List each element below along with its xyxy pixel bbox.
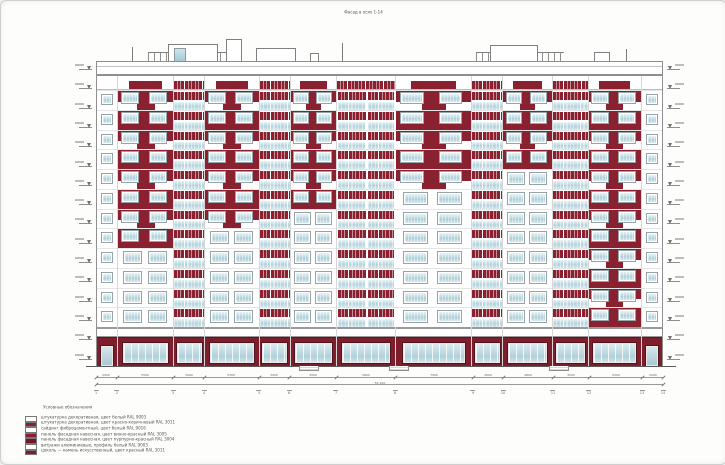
segment-dimension: 7500 <box>427 374 442 378</box>
window <box>209 152 225 162</box>
floor-cell <box>589 228 641 248</box>
balcony-glazing <box>553 318 588 327</box>
balcony-spandrel <box>472 211 502 219</box>
red-spine <box>503 161 551 169</box>
axis-number: 5 <box>253 391 264 395</box>
balcony-spandrel <box>260 230 290 238</box>
balcony-spandrel <box>472 151 502 159</box>
balcony-spandrel <box>260 191 290 199</box>
elevation-value <box>675 141 684 143</box>
roof-antenna <box>626 49 627 61</box>
attic-red-panel <box>472 81 502 89</box>
balcony-spandrel <box>260 171 290 179</box>
floor-cell <box>118 228 173 248</box>
mark-arrow <box>87 85 91 89</box>
window <box>150 113 166 123</box>
red-spine <box>306 141 320 149</box>
window <box>619 310 635 320</box>
floor-cell <box>97 189 117 209</box>
elevation-mark <box>75 238 92 247</box>
balcony-glazing <box>260 220 290 229</box>
floor-cell <box>589 209 641 229</box>
window <box>317 93 331 103</box>
red-spine <box>118 201 173 209</box>
window <box>124 292 141 303</box>
elevation-value <box>675 83 684 85</box>
balcony-glazing <box>368 141 394 150</box>
cornice-band <box>396 327 471 337</box>
floor-cell <box>503 149 551 169</box>
balcony-strip <box>337 190 368 209</box>
elevation-value <box>675 64 684 66</box>
floor-cell <box>97 248 117 268</box>
balcony-strip <box>337 111 368 130</box>
elevation-mark <box>667 161 684 170</box>
floor-cell <box>472 149 502 169</box>
bay-floors <box>97 90 117 327</box>
balcony-glazing <box>260 299 290 308</box>
floor-cell <box>642 248 662 268</box>
balcony-strip <box>337 308 368 327</box>
balcony-glazing <box>260 239 290 248</box>
mark-arrow <box>87 143 91 147</box>
balcony-spandrel <box>368 171 394 179</box>
balcony-glazing <box>553 279 588 288</box>
attic-red-panel <box>129 81 162 89</box>
facade-bays <box>96 76 663 366</box>
balcony-spandrel <box>174 270 204 278</box>
window <box>438 252 461 263</box>
window <box>317 152 331 162</box>
window <box>508 173 523 184</box>
balcony-spandrel <box>368 211 394 219</box>
floor-cell <box>337 169 395 189</box>
floor-cell <box>503 228 551 248</box>
elevation-value <box>675 238 684 240</box>
segment-dimension: 5300 <box>224 374 239 378</box>
elevation-mark <box>75 122 92 131</box>
balcony-glazing <box>472 200 502 209</box>
elevation-mark <box>75 218 92 227</box>
floor-cell <box>174 90 204 110</box>
window <box>619 133 635 143</box>
axis-number: 12 <box>583 391 594 395</box>
facade-bay-red <box>503 76 552 366</box>
balcony-glazing <box>338 299 366 308</box>
red-spine <box>137 181 155 189</box>
storefront-window <box>262 343 287 363</box>
balcony-strip <box>337 269 368 288</box>
floor-cell <box>291 149 336 169</box>
storefront-window <box>177 343 202 363</box>
window <box>236 192 252 202</box>
balcony-spandrel <box>553 92 588 100</box>
floor-cell <box>174 288 204 308</box>
axis-number: 9 <box>467 391 478 395</box>
window <box>619 271 635 281</box>
window <box>592 251 608 261</box>
floor-cell <box>553 189 588 209</box>
balcony-spandrel <box>368 250 394 258</box>
segment-dimension: 5500 <box>137 374 152 378</box>
elevation-value <box>75 199 84 201</box>
floor-cell <box>589 169 641 189</box>
window <box>150 231 166 241</box>
window <box>316 292 331 303</box>
red-spine <box>606 102 623 110</box>
floor-cell <box>174 169 204 189</box>
facade-bay-red <box>589 76 642 366</box>
window <box>295 252 310 263</box>
floor-cell <box>291 169 336 189</box>
balcony-spandrel <box>338 211 366 219</box>
window <box>508 252 523 263</box>
attic-panel <box>337 76 395 90</box>
window <box>295 213 310 224</box>
balcony-spandrel <box>260 250 290 258</box>
window <box>508 311 523 322</box>
ground-floor <box>205 337 258 366</box>
balcony-glazing <box>260 101 290 110</box>
legend-label: витражи алюминиевые, профиль белый RAL 9… <box>41 443 148 448</box>
balcony-spandrel <box>338 92 366 100</box>
balcony-glazing <box>260 121 290 130</box>
stair-window <box>102 154 112 163</box>
balcony-glazing <box>553 160 588 169</box>
window <box>316 311 331 322</box>
floor-cell <box>472 90 502 110</box>
storefront-window <box>475 343 500 363</box>
facade-bay-red <box>291 76 337 366</box>
window <box>236 93 252 103</box>
drawing-title: Фасад в осях 1-14 <box>153 10 574 15</box>
balcony-spandrel <box>553 250 588 258</box>
window <box>531 113 546 123</box>
balcony-glazing <box>553 141 588 150</box>
red-spine <box>137 220 155 228</box>
red-spine <box>223 181 240 189</box>
window <box>294 113 308 123</box>
window <box>531 93 546 103</box>
balcony-spandrel <box>174 151 204 159</box>
balcony-spandrel <box>338 230 366 238</box>
floor-cell <box>472 288 502 308</box>
axis-number: 10 <box>498 391 509 395</box>
cornice-band <box>472 327 502 337</box>
segment-dimension: 2000 <box>645 374 660 378</box>
window <box>149 252 166 263</box>
storefront-window <box>556 343 585 363</box>
balcony-spandrel <box>472 309 502 317</box>
balcony-glazing <box>260 318 290 327</box>
balcony-strip <box>367 229 396 248</box>
red-spine <box>606 299 623 307</box>
balcony-glazing <box>174 279 204 288</box>
balcony-spandrel <box>472 230 502 238</box>
window <box>149 292 166 303</box>
floor-cell <box>174 248 204 268</box>
ground-floor <box>642 337 662 366</box>
window <box>619 172 635 182</box>
floor-cell <box>97 110 117 130</box>
window <box>211 292 228 303</box>
total-dimension: 55 100 <box>370 381 390 385</box>
stair-window <box>647 214 657 223</box>
window <box>592 271 608 281</box>
floor-cell <box>472 268 502 288</box>
mark-arrow <box>668 163 672 167</box>
floor-cell <box>396 248 471 268</box>
floor-cell <box>118 209 173 229</box>
elevation-mark <box>75 180 92 189</box>
red-spine <box>422 181 446 189</box>
floor-cell <box>118 248 173 268</box>
window <box>440 113 462 123</box>
floor-cell <box>503 169 551 189</box>
ground-floor <box>396 337 471 366</box>
floor-cell <box>118 268 173 288</box>
balcony-spandrel <box>174 112 204 120</box>
red-spine <box>306 181 320 189</box>
window <box>149 311 166 322</box>
balcony-glazing <box>174 299 204 308</box>
floor-cell <box>553 288 588 308</box>
balcony-spandrel <box>174 230 204 238</box>
floor-cell <box>503 307 551 327</box>
stair-window <box>647 273 657 282</box>
balcony-glazing <box>472 279 502 288</box>
balcony-spandrel <box>338 309 366 317</box>
ground-floor <box>118 337 173 366</box>
floor-cell <box>589 90 641 110</box>
balcony-glazing <box>174 318 204 327</box>
stair-window <box>102 233 112 242</box>
floor-cell <box>472 169 502 189</box>
floor-cell <box>472 110 502 130</box>
building-elevation <box>96 61 663 366</box>
floor-cell <box>396 130 471 150</box>
floor-cell <box>472 307 502 327</box>
attic-red-panel <box>337 81 395 89</box>
floor-cell <box>291 130 336 150</box>
facade-bay-balcony <box>553 76 589 366</box>
balcony-glazing <box>472 220 502 229</box>
elevation-mark <box>75 161 92 170</box>
window <box>122 93 138 103</box>
balcony-glazing <box>472 239 502 248</box>
floor-cell <box>337 209 395 229</box>
red-spine <box>118 122 173 130</box>
stair-window <box>647 174 657 183</box>
roof-antenna <box>342 43 343 61</box>
balcony-spandrel <box>553 112 588 120</box>
balcony-spandrel <box>260 211 290 219</box>
balcony-glazing <box>472 180 502 189</box>
balcony-strip <box>367 308 396 327</box>
floor-cell <box>396 90 471 110</box>
balcony-glazing <box>553 220 588 229</box>
balcony-glazing <box>368 220 394 229</box>
elevation-value <box>75 103 84 105</box>
balcony-spandrel <box>472 92 502 100</box>
bay-floors <box>337 90 395 327</box>
attic-red-panel <box>174 81 204 89</box>
floor-cell <box>291 248 336 268</box>
cornice-band <box>205 327 258 337</box>
red-spine <box>589 319 641 327</box>
window <box>150 152 166 162</box>
floor-cell <box>118 90 173 110</box>
floor-cell <box>337 130 395 150</box>
floor-cell <box>260 149 290 169</box>
mark-arrow <box>668 336 672 340</box>
balcony-strip <box>337 170 368 189</box>
stair-window <box>102 194 112 203</box>
red-spine <box>205 161 258 169</box>
floor-cell <box>260 209 290 229</box>
balcony-spandrel <box>338 290 366 298</box>
window <box>122 113 138 123</box>
balcony-glazing <box>553 259 588 268</box>
elevation-mark <box>75 296 92 305</box>
floor-cell <box>589 130 641 150</box>
balcony-spandrel <box>260 112 290 120</box>
floor-cell <box>291 307 336 327</box>
floor-cell <box>260 189 290 209</box>
floor-cell <box>97 130 117 150</box>
balcony-spandrel <box>553 211 588 219</box>
balcony-strip <box>367 111 396 130</box>
floor-cell <box>97 169 117 189</box>
elevation-value <box>75 296 84 298</box>
mark-arrow <box>87 317 91 321</box>
facade-bay-red <box>118 76 174 366</box>
balcony-glazing <box>174 180 204 189</box>
ground-floor <box>503 337 551 366</box>
window <box>294 152 308 162</box>
attic-panel <box>396 76 471 90</box>
floor-cell <box>205 110 258 130</box>
cornice-band <box>337 327 395 337</box>
elevation-value <box>75 276 84 278</box>
window <box>294 133 308 143</box>
ground-floor <box>260 337 290 366</box>
window <box>619 93 635 103</box>
balcony-glazing <box>174 121 204 130</box>
balcony-spandrel <box>260 309 290 317</box>
window <box>619 251 635 261</box>
elevation-value <box>75 334 84 336</box>
balcony-spandrel <box>174 290 204 298</box>
red-spine <box>223 102 240 110</box>
stair-window <box>102 115 112 124</box>
floor-cell <box>337 248 395 268</box>
attic-red-panel <box>300 81 327 89</box>
floor-cell <box>260 228 290 248</box>
floor-cell <box>642 169 662 189</box>
floor-cell <box>118 130 173 150</box>
balcony-spandrel <box>338 191 366 199</box>
balcony-glazing <box>553 200 588 209</box>
balcony-glazing <box>368 121 394 130</box>
axis-number: 6 <box>284 391 295 395</box>
elevation-mark <box>667 354 684 363</box>
red-spine <box>606 141 623 149</box>
window <box>122 133 138 143</box>
elevation-mark <box>75 64 92 73</box>
bay-floors <box>260 90 290 327</box>
floor-cell <box>260 248 290 268</box>
window <box>316 252 331 263</box>
balcony-glazing <box>260 259 290 268</box>
stair-window <box>647 312 657 321</box>
window <box>294 93 308 103</box>
balcony-spandrel <box>368 92 394 100</box>
balcony-strip <box>337 229 368 248</box>
balcony-spandrel <box>338 270 366 278</box>
window <box>592 152 608 162</box>
mark-arrow <box>668 124 672 128</box>
floor-cell <box>118 169 173 189</box>
axis-number: 4 <box>199 391 210 395</box>
window <box>209 133 225 143</box>
elevation-mark <box>75 141 92 150</box>
window <box>440 172 462 182</box>
floor-cell <box>291 90 336 110</box>
window <box>592 192 608 202</box>
ground-floor <box>553 337 588 366</box>
elevation-mark <box>75 315 92 324</box>
window <box>401 133 423 143</box>
window <box>294 172 308 182</box>
elevation-value <box>675 315 684 317</box>
window <box>209 172 225 182</box>
balcony-spandrel <box>368 309 394 317</box>
balcony-spandrel <box>174 92 204 100</box>
floor-cell <box>503 130 551 150</box>
red-spine <box>589 122 641 130</box>
window <box>438 232 461 243</box>
balcony-spandrel <box>174 132 204 140</box>
elevation-mark <box>667 276 684 285</box>
stair-window <box>102 214 112 223</box>
floor-cell <box>97 149 117 169</box>
entrance-step <box>389 366 409 371</box>
elevation-mark <box>75 354 92 363</box>
floor-cell <box>337 268 395 288</box>
floor-cell <box>337 228 395 248</box>
attic-panel <box>260 76 290 90</box>
balcony-strip <box>337 150 368 169</box>
window <box>209 93 225 103</box>
balcony-spandrel <box>553 191 588 199</box>
balcony-spandrel <box>472 290 502 298</box>
window <box>401 152 423 162</box>
window <box>508 272 523 283</box>
balcony-spandrel <box>472 270 502 278</box>
balcony-strip <box>367 289 396 308</box>
floor-cell <box>337 110 395 130</box>
dimension-block: 1234567891011121314200055003000530030004… <box>96 373 663 399</box>
balcony-glazing <box>260 279 290 288</box>
axis-number: 1 <box>91 391 102 395</box>
floor-cell <box>472 209 502 229</box>
floor-cell <box>174 130 204 150</box>
window <box>530 193 545 204</box>
floor-cell <box>503 209 551 229</box>
floor-cell <box>642 268 662 288</box>
mark-arrow <box>87 336 91 340</box>
